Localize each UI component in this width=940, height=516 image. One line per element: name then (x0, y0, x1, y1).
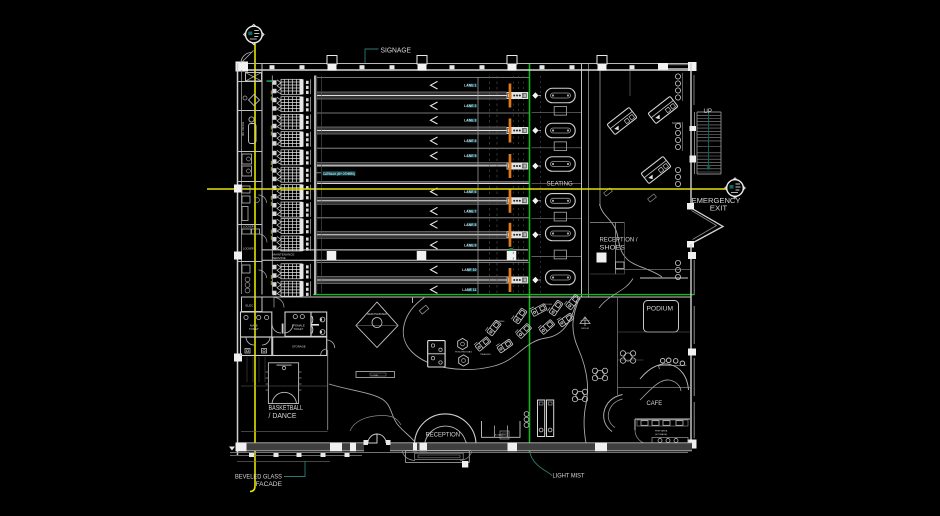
svg-text:LANE 7: LANE 7 (464, 210, 477, 214)
svg-text:LOBBY: LOBBY (371, 375, 379, 377)
svg-text:LOCKER: LOCKER (243, 247, 254, 251)
svg-text:EXIT: EXIT (710, 206, 728, 213)
svg-text:CYCLING: CYCLING (543, 304, 552, 306)
svg-text:BEVELED GLASS: BEVELED GLASS (235, 473, 283, 480)
svg-text:LANE 9: LANE 9 (464, 244, 477, 248)
svg-text:LANE 3: LANE 3 (464, 119, 477, 123)
svg-text:LANE 5: LANE 5 (464, 154, 477, 158)
svg-text:LANE 4: LANE 4 (464, 139, 477, 143)
svg-text:CAFE: CAFE (647, 400, 663, 407)
svg-text:/ DANCE: / DANCE (269, 411, 297, 420)
svg-text:STORAGE: STORAGE (292, 345, 306, 349)
svg-text:SIGNAGE: SIGNAGE (381, 47, 412, 54)
svg-text:(STORAGE): (STORAGE) (655, 433, 667, 436)
svg-text:LANE 1: LANE 1 (464, 84, 477, 88)
svg-text:ELEC: ELEC (246, 304, 255, 308)
svg-text:LOCKER: LOCKER (243, 225, 254, 229)
svg-text:TOILET: TOILET (294, 327, 304, 331)
svg-text:MERCHANDISER: MERCHANDISER (367, 313, 387, 316)
svg-text:DISPLAY: DISPLAY (581, 327, 590, 330)
svg-text:FACADE: FACADE (256, 481, 283, 488)
svg-text:LANE 2: LANE 2 (464, 104, 477, 108)
svg-text:LANE 8: LANE 8 (464, 223, 477, 227)
svg-text:RECEPTION /: RECEPTION / (600, 236, 638, 243)
svg-text:SEATING: SEATING (547, 181, 573, 188)
svg-text:TOILET: TOILET (249, 327, 259, 331)
svg-text:MD OFFICE: MD OFFICE (241, 121, 245, 136)
svg-text:CATWALK (BY OTHERS): CATWALK (BY OTHERS) (323, 172, 356, 176)
svg-text:LIGHT MIST: LIGHT MIST (553, 473, 585, 480)
svg-text:SHOES: SHOES (600, 245, 626, 252)
svg-text:TREADMILL: TREADMILL (480, 353, 492, 356)
svg-text:ROWING: ROWING (496, 321, 505, 323)
svg-text:PREP AREA: PREP AREA (655, 430, 668, 433)
svg-text:UP: UP (704, 108, 713, 115)
svg-text:LANE 11: LANE 11 (462, 288, 476, 292)
svg-text:PUNCHING BAG: PUNCHING BAG (455, 350, 472, 353)
svg-text:E-GAMING: E-GAMING (495, 434, 506, 437)
svg-text:RECEPTION: RECEPTION (426, 431, 461, 438)
svg-text:EMERGENCY: EMERGENCY (692, 198, 741, 205)
svg-text:LANE 10: LANE 10 (462, 268, 476, 272)
svg-text:PODIUM: PODIUM (647, 306, 674, 313)
svg-text:LANE 6: LANE 6 (464, 190, 477, 194)
svg-text:SERVICE: SERVICE (273, 256, 286, 260)
